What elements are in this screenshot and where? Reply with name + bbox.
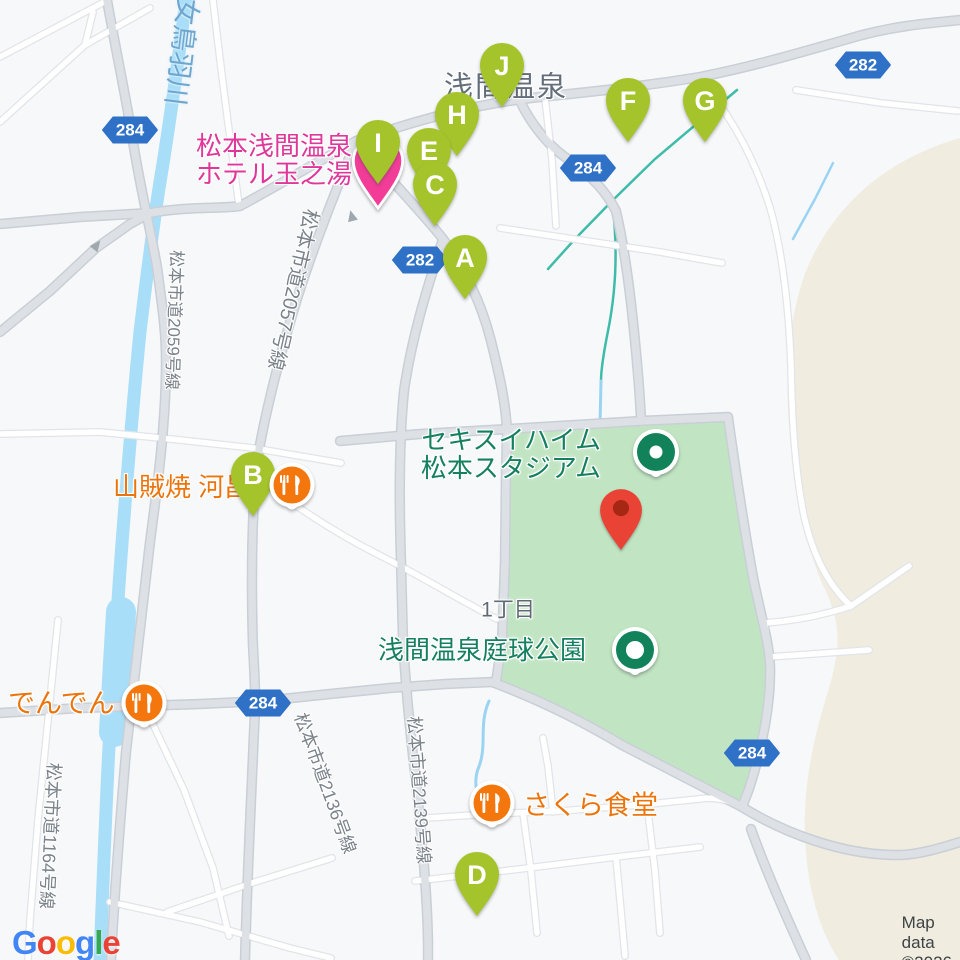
svg-text:G: G [694, 86, 715, 116]
svg-text:C: C [425, 170, 445, 200]
svg-text:B: B [243, 460, 263, 490]
map-marker-g[interactable]: G [683, 78, 727, 142]
logo-letter: o [56, 924, 75, 960]
restaurant-icon-kawasho[interactable] [270, 463, 315, 510]
map-marker-b[interactable]: B [231, 452, 275, 516]
map-canvas[interactable]: 女鳥羽川 松本市道2059号線 松本市道2057号線 松本市道1164号線 松本… [0, 0, 960, 960]
map-marker-d[interactable]: D [455, 852, 499, 916]
restaurant-icon-sakura[interactable] [470, 781, 515, 828]
map-marker-j[interactable]: J [480, 43, 524, 107]
svg-text:A: A [455, 243, 475, 273]
logo-letter: G [12, 924, 37, 960]
park-icon-stadium[interactable] [633, 429, 679, 477]
park-icon-tennis[interactable] [612, 627, 658, 675]
svg-text:I: I [374, 128, 382, 158]
svg-text:H: H [447, 100, 467, 130]
google-logo[interactable]: Google [12, 924, 120, 960]
map-marker-a[interactable]: A [443, 235, 487, 299]
restaurant-icon-denden[interactable] [122, 681, 167, 728]
logo-letter: o [37, 924, 56, 960]
svg-text:E: E [420, 136, 438, 166]
map-attribution: Map data ©2026 [902, 913, 952, 960]
logo-letter: g [75, 924, 94, 960]
map-pins-layer: J H E C A I F G B D [0, 0, 960, 960]
map-marker-c[interactable]: C [413, 162, 457, 226]
svg-text:D: D [467, 860, 487, 890]
red-pin-icon[interactable] [600, 489, 642, 550]
logo-letter: e [102, 924, 119, 960]
svg-text:J: J [494, 51, 509, 81]
map-marker-f[interactable]: F [606, 78, 650, 142]
svg-text:F: F [620, 86, 637, 116]
